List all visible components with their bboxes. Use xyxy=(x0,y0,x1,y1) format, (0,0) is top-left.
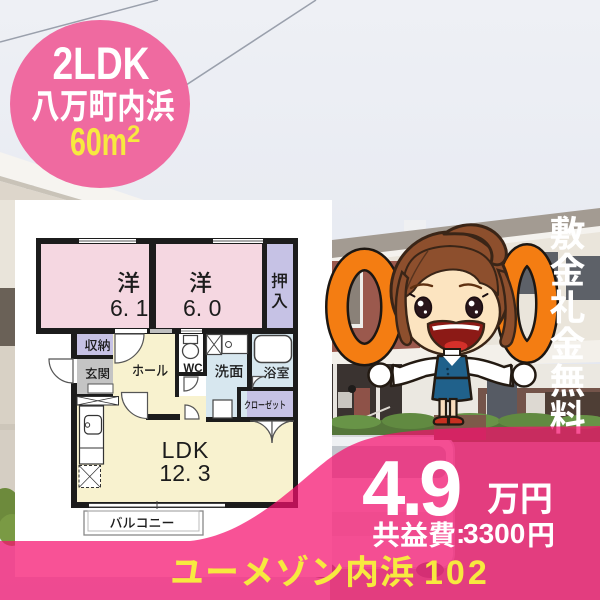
svg-text:6. 0: 6. 0 xyxy=(183,295,221,321)
svg-text:2LDK: 2LDK xyxy=(53,38,150,89)
svg-text:12. 3: 12. 3 xyxy=(159,460,210,486)
svg-text:102: 102 xyxy=(424,554,490,592)
svg-text:2: 2 xyxy=(127,121,140,148)
svg-text:4.9: 4.9 xyxy=(362,444,460,532)
svg-text:60m: 60m xyxy=(70,121,127,164)
svg-text:3300: 3300 xyxy=(463,518,525,549)
svg-text:6. 1: 6. 1 xyxy=(110,295,148,321)
svg-text:WC: WC xyxy=(183,363,202,375)
